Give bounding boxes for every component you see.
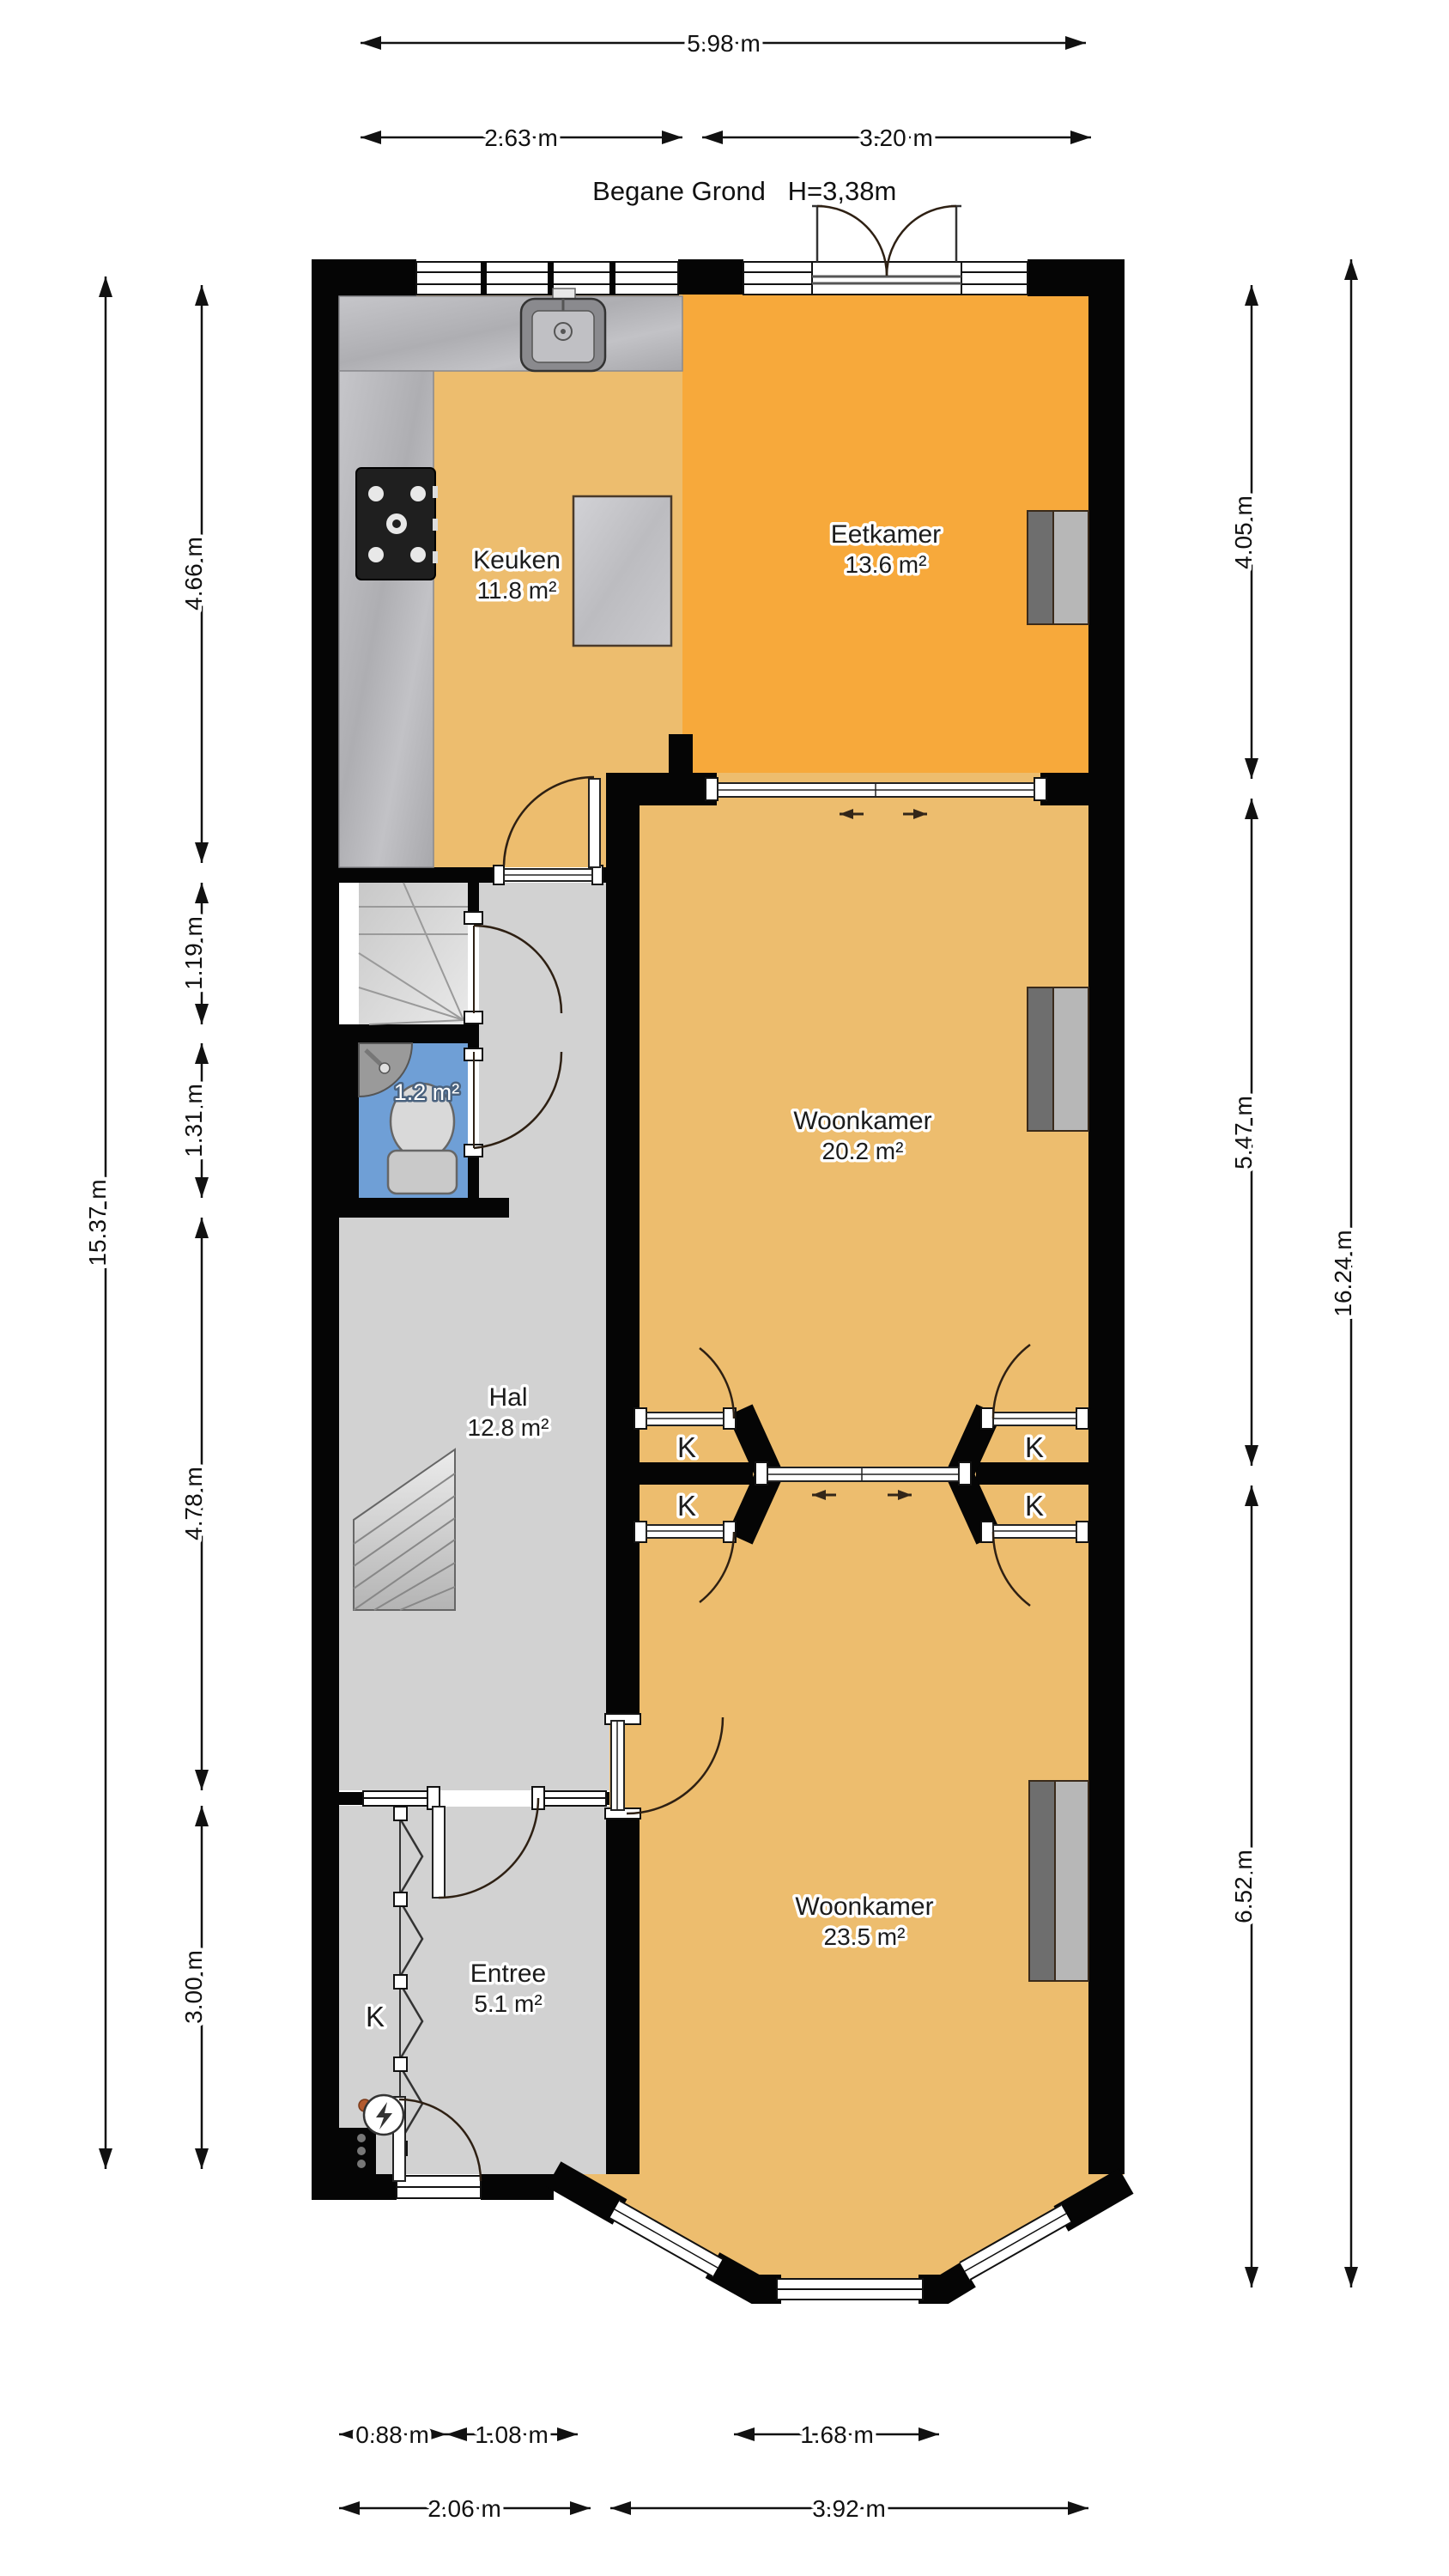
label-hal-area: 12.8 m²: [468, 1414, 549, 1441]
label-toilet-area: 1.2 m²: [394, 1079, 460, 1105]
bay-window-bottom: [777, 2279, 923, 2300]
label-eetkamer-area: 13.6 m²: [846, 551, 927, 578]
fusebox-dot: [357, 2160, 366, 2168]
dim-top-total: 5.98 m: [687, 30, 761, 57]
plan-title: Begane Grond H=3,38m: [592, 176, 896, 206]
floors: [339, 295, 1125, 2289]
label-hal: Hal: [488, 1383, 527, 1412]
wall-chimney-topleft: [312, 259, 416, 296]
label-closet-left-bottom: K: [677, 1490, 696, 1522]
keuken-window: [416, 262, 678, 295]
dim-left-keuken: 4.66 m: [180, 537, 207, 611]
dim-right-eetkamer: 4.05 m: [1230, 495, 1257, 569]
label-closet-left-top: K: [677, 1431, 696, 1463]
kitchen-island: [573, 496, 671, 646]
sink: [521, 289, 605, 371]
label-keuken-area: 11.8 m²: [477, 577, 557, 604]
wall-keuken-south-left: [339, 867, 494, 883]
eetkamer-window-left: [743, 262, 812, 295]
eetkamer-window-right: [961, 262, 1028, 295]
wall-keuken-eetkamer-stub: [669, 734, 693, 777]
dim-left-entree: 3.00 m: [180, 1950, 207, 2024]
dim-top-eetkamer: 3.20 m: [859, 125, 933, 151]
label-closet-right-bottom: K: [1025, 1490, 1044, 1522]
label-woonkamer2-area: 23.5 m²: [824, 1923, 906, 1950]
dim-left-total: 15.37 m: [84, 1179, 111, 1266]
wall-hal-east: [606, 805, 640, 1717]
dim-right-woonkamer1: 5.47 m: [1230, 1096, 1257, 1170]
dim-right-total: 16.24 m: [1330, 1230, 1356, 1316]
radiator-woonkamer2: [1029, 1781, 1088, 1981]
counter-top: [339, 296, 682, 371]
dim-top-keuken: 2.63 m: [484, 125, 558, 151]
label-entree-area: 5.1 m²: [474, 1990, 542, 2017]
stove: [356, 468, 438, 580]
fusebox-dot: [357, 2147, 366, 2155]
dim-bottom-right-total: 3.92 m: [812, 2495, 886, 2522]
bay-wall-right-corner: [919, 2275, 968, 2289]
wall-entree-east: [606, 1814, 640, 2174]
wall-right: [1088, 259, 1125, 2174]
dim-right-woonkamer2: 6.52 m: [1230, 1850, 1257, 1923]
ceiling-height: H=3,38m: [788, 176, 897, 206]
label-entree: Entree: [470, 1959, 546, 1988]
wall-eetkamer-south-right: [1040, 773, 1088, 805]
dim-bottom-left-total: 2.06 m: [427, 2495, 501, 2522]
dim-bottom-door: 0.88 m: [355, 2421, 429, 2448]
wall-top-mid: [678, 259, 743, 295]
counter-left: [339, 371, 433, 867]
wall-corner-topright: [1028, 259, 1125, 296]
wall-stairs-toilet: [312, 1024, 479, 1043]
radiator-eetkamer: [1028, 511, 1088, 624]
fusebox-dot: [357, 2134, 366, 2142]
label-eetkamer: Eetkamer: [831, 520, 941, 549]
wall-bottom-mid: [481, 2174, 554, 2200]
wall-toilet-west: [312, 1024, 359, 1218]
wall-toilet-south: [312, 1198, 509, 1218]
wall-divider-left: [640, 1462, 753, 1485]
label-closet-entree: K: [366, 2001, 385, 2032]
dim-bottom-entree: 1.08 m: [475, 2421, 549, 2448]
electric-meter-icon: [364, 2095, 403, 2135]
hal-floor-upper: [479, 883, 609, 1218]
dim-left-hal: 4.78 m: [180, 1467, 207, 1540]
floor-title: Begane Grond: [592, 176, 766, 206]
woonkamer2-floor: [640, 1468, 1088, 2174]
floorplan-page: 5.98 m 2.63 m 3.20 m 15.37 m 4.66 m 1.19…: [0, 0, 1449, 2576]
radiator-woonkamer1: [1028, 987, 1088, 1131]
wall-bottom-left: [312, 2174, 397, 2200]
label-woonkamer1-area: 20.2 m²: [822, 1138, 904, 1164]
label-woonkamer1: Woonkamer: [793, 1107, 931, 1135]
label-closet-right-top: K: [1025, 1431, 1044, 1463]
dim-bottom-bay: 1.68 m: [800, 2421, 874, 2448]
dim-left-toilet: 1.31 m: [180, 1084, 207, 1157]
label-keuken: Keuken: [473, 546, 561, 574]
floorplan-canvas: 5.98 m 2.63 m 3.20 m 15.37 m 4.66 m 1.19…: [0, 0, 1449, 2576]
label-woonkamer2: Woonkamer: [795, 1893, 933, 1921]
wall-divider-right: [976, 1462, 1088, 1485]
dim-left-stairs: 1.19 m: [180, 916, 207, 990]
wall-eetkamer-south-left: [606, 773, 717, 805]
